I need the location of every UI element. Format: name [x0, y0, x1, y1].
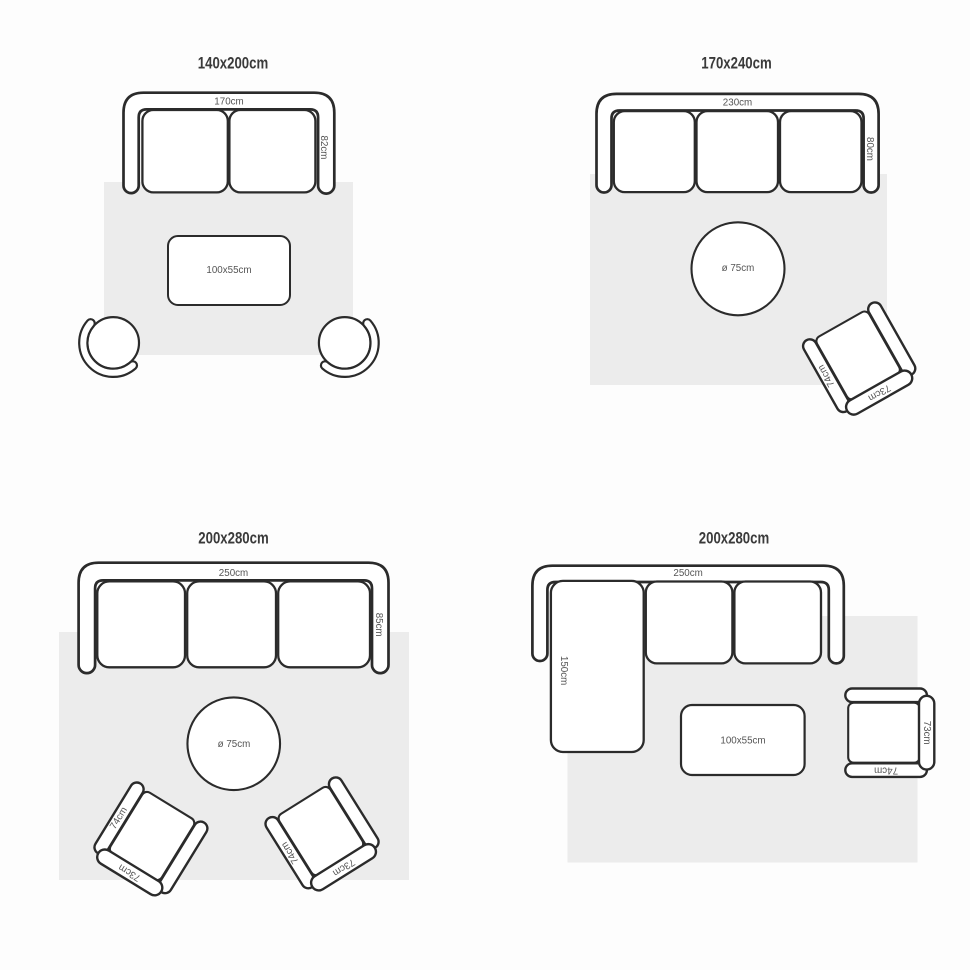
- svg-text:80cm: 80cm: [864, 137, 875, 161]
- svg-text:ø 75cm: ø 75cm: [218, 739, 251, 750]
- svg-text:250cm: 250cm: [219, 568, 248, 579]
- svg-text:250cm: 250cm: [673, 568, 702, 579]
- svg-text:100x55cm: 100x55cm: [720, 736, 765, 747]
- svg-text:200x280cm: 200x280cm: [198, 529, 268, 548]
- svg-text:170x240cm: 170x240cm: [701, 54, 771, 73]
- svg-text:100x55cm: 100x55cm: [206, 265, 251, 276]
- svg-text:150cm: 150cm: [558, 656, 569, 685]
- svg-text:170cm: 170cm: [214, 96, 243, 107]
- svg-text:140x200cm: 140x200cm: [198, 54, 268, 73]
- svg-text:200x280cm: 200x280cm: [699, 529, 769, 548]
- svg-text:230cm: 230cm: [723, 98, 752, 109]
- svg-text:82cm: 82cm: [318, 136, 329, 160]
- svg-text:ø 75cm: ø 75cm: [722, 263, 755, 274]
- svg-text:85cm: 85cm: [373, 613, 384, 637]
